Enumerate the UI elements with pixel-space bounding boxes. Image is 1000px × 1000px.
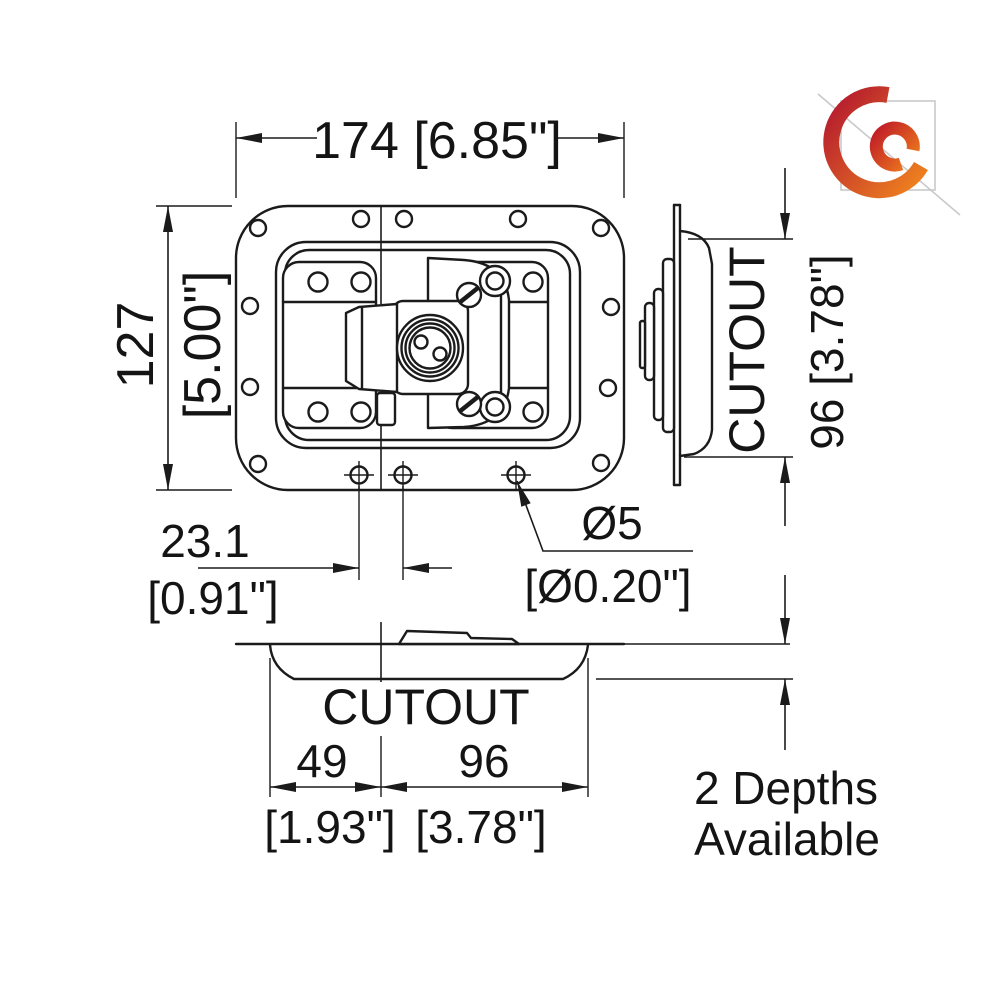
pivot-boss-bottom — [480, 392, 510, 422]
dim-hole-offset-mm: 23.1 — [160, 515, 250, 567]
dim-cutout-right-mm: 96 — [458, 735, 509, 787]
dim-hole-diameter-in: [Ø0.20"] — [524, 560, 691, 612]
wing-screw-bottom — [457, 392, 481, 416]
note-depths-line2: Available — [694, 813, 880, 865]
turn-knob — [397, 315, 463, 381]
technical-drawing: 174 [6.85"] 127 [5.00"] 23.1 [0.91"] Ø5 … — [0, 0, 1000, 1000]
note-depths-line1: 2 Depths — [694, 762, 878, 814]
dim-overall-height-mm: 127 — [107, 302, 165, 389]
dim-cutout-right-in: [3.78"] — [415, 801, 546, 853]
dim-overall-height-in: [5.00"] — [174, 271, 232, 420]
drawing-canvas: 174 [6.85"] 127 [5.00"] 23.1 [0.91"] Ø5 … — [0, 0, 1000, 1000]
latch-hook — [377, 393, 395, 425]
dim-hole-diameter-mm: Ø5 — [581, 497, 642, 549]
wing-screw-top — [457, 283, 481, 307]
dim-cutout-height-label: 96 [3.78"] — [801, 254, 853, 449]
dim-cutout-left-in: [1.93"] — [264, 801, 395, 853]
side-cutout-label: CUTOUT — [719, 246, 775, 453]
pivot-boss-top — [480, 266, 510, 296]
dim-hole-offset-in: [0.91"] — [147, 572, 278, 624]
bottom-cutout-label: CUTOUT — [322, 679, 529, 735]
latch-lever — [346, 304, 397, 392]
dim-cutout-left-mm: 49 — [296, 735, 347, 787]
dim-overall-width-label: 174 [6.85"] — [312, 112, 562, 170]
front-view — [236, 206, 624, 490]
